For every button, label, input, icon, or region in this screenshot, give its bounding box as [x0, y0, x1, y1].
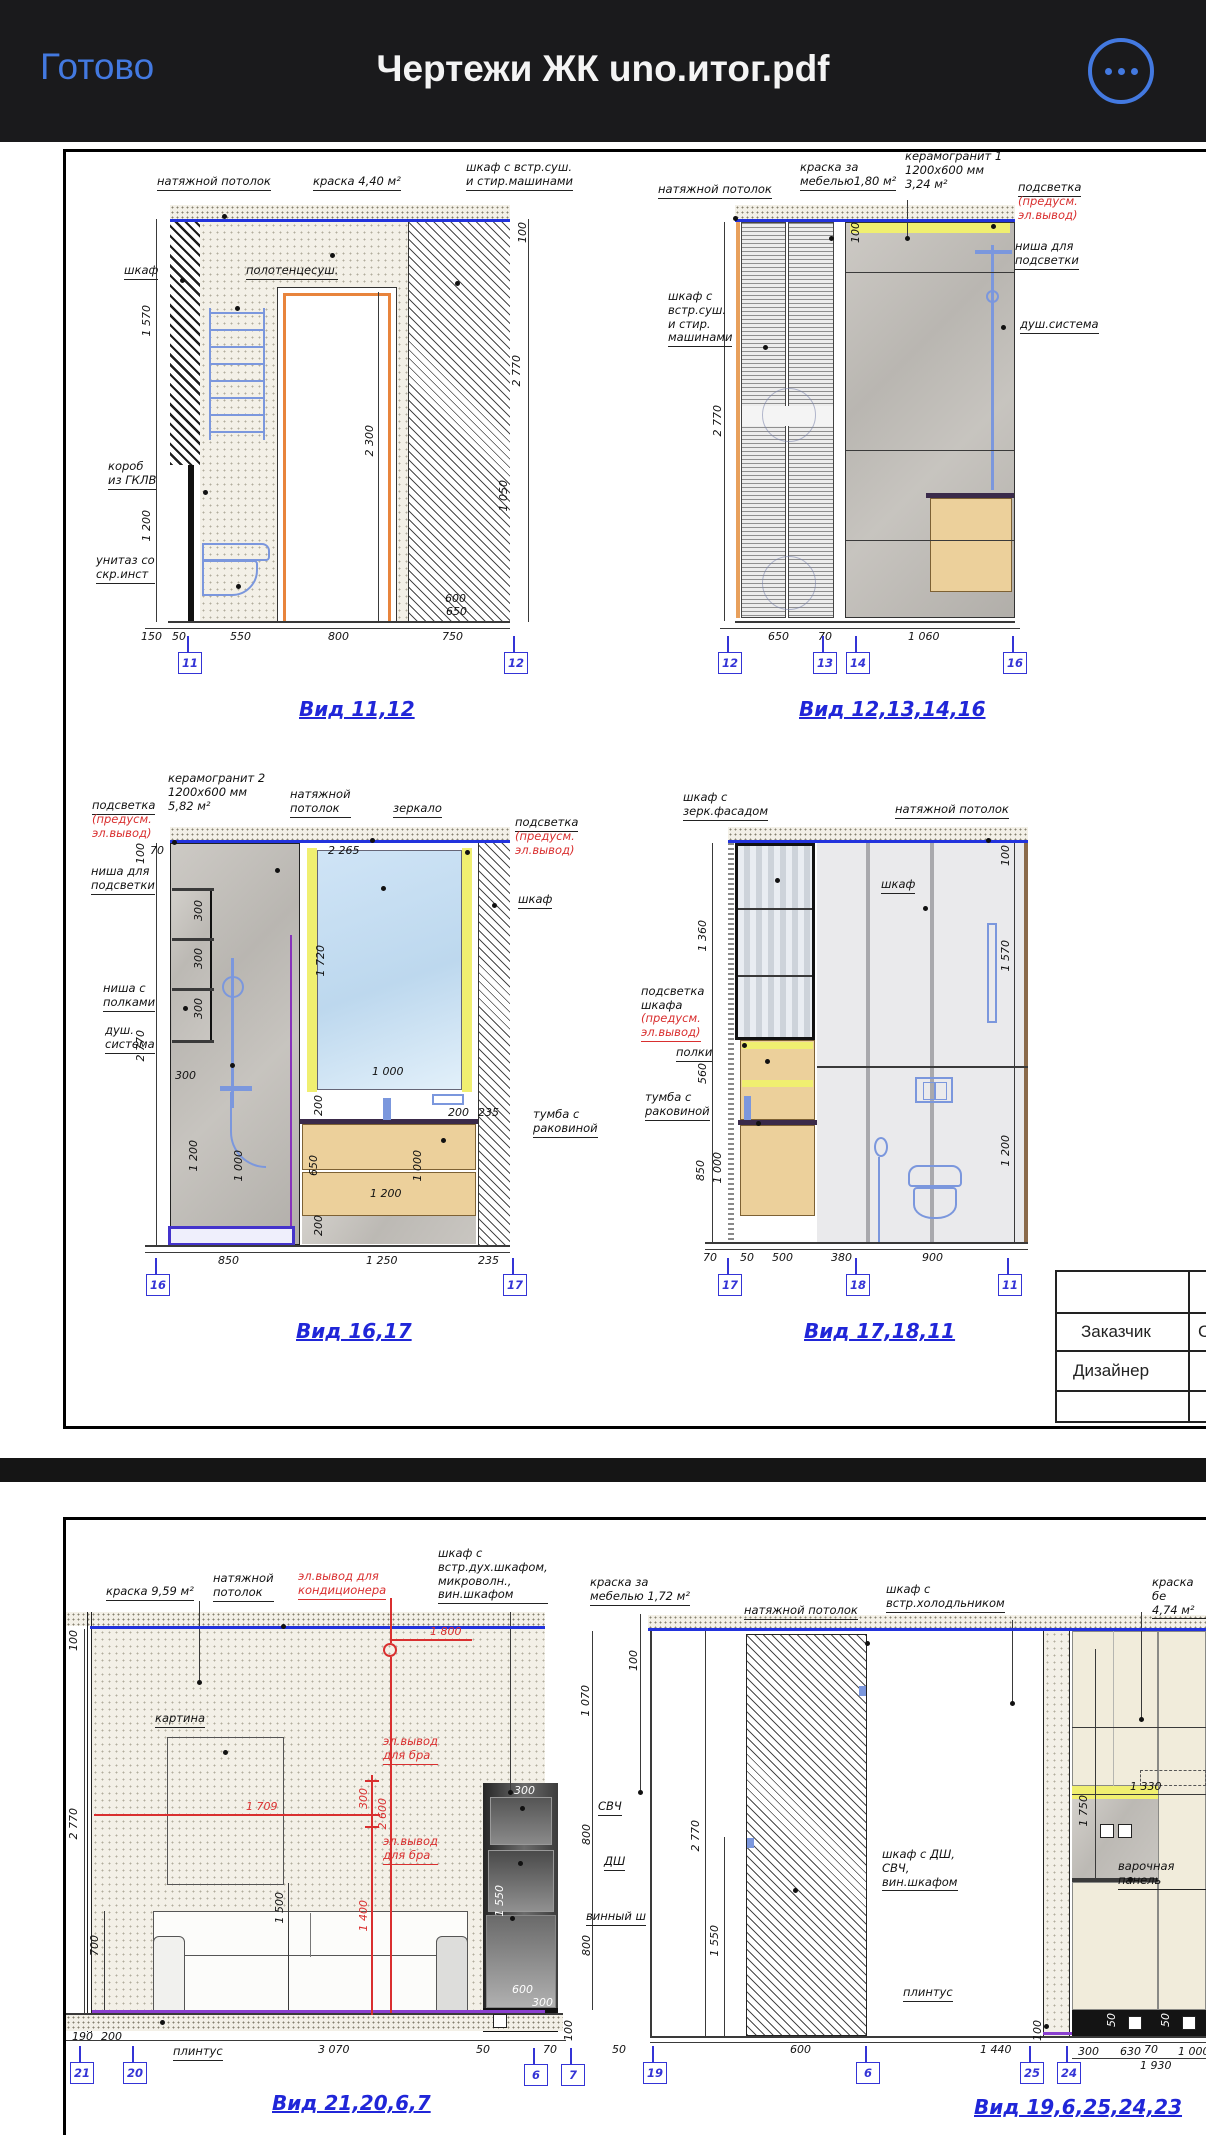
d2-leader-dot [763, 345, 768, 350]
d1-dim-line-right [528, 219, 529, 622]
d3-callout-light-niche: ниша для подсветки [91, 865, 155, 895]
d2-washer-drum-outline [762, 388, 816, 442]
d1-dim: 600 [445, 593, 466, 604]
d3-ceiling-slab [170, 827, 510, 840]
d3-accessories [432, 1094, 464, 1105]
d6-leader-dot [793, 1888, 798, 1893]
d6-dim-line-2770 [705, 1631, 706, 2036]
d6-view-marker: 6 [856, 2062, 880, 2084]
d2-leader-dot [991, 224, 996, 229]
d3-faucet [383, 1098, 391, 1120]
d5-dim: 1 070 [580, 1685, 591, 1717]
d3-floor-line [145, 1245, 510, 1247]
more-menu-button[interactable] [1088, 38, 1154, 104]
d3-dim: 1 720 [315, 945, 326, 977]
d5-microwave [490, 1797, 552, 1845]
d1-leader-dot [330, 253, 335, 258]
d5-floor-line [66, 2013, 563, 2015]
d5-dim: 190 [72, 2031, 93, 2042]
d5-dim: 2 770 [68, 1808, 79, 1840]
d4-shelf-backlight [742, 1080, 813, 1087]
d4-caption-link[interactable]: Вид 17,18,11 [798, 1318, 961, 1344]
d5-red-dim-1709-line [94, 1814, 380, 1816]
d5-dim-white: 300 [532, 1997, 553, 2008]
d5-dim: 100 [563, 2020, 574, 2041]
d5-callout-tall-cabinet: шкаф с встр.дух.шкафом, микроволн., вин.… [438, 1547, 548, 1604]
d4-callout-mirror-cabinet: шкаф с зерк.фасадом [683, 791, 768, 821]
d4-leader-dot [742, 1043, 747, 1048]
d6-dim: 100 [1032, 2020, 1043, 2041]
d2-light-niche [850, 223, 1010, 233]
d5-callout-microwave: СВЧ [598, 1800, 622, 1816]
title-block-line [1057, 1312, 1206, 1314]
d6-dim: 1 550 [709, 1925, 720, 1957]
d4-dim: 500 [772, 1252, 793, 1263]
page-gap [0, 1458, 1206, 1482]
d5-dim: 700 [89, 1935, 100, 1956]
d6-view-marker: 19 [643, 2062, 667, 2084]
d2-shower-pipe [991, 245, 994, 490]
d2-callout-backlight-red: (предусм. эл.вывод) [1018, 195, 1078, 223]
d6-dim: 2 770 [690, 1820, 701, 1852]
d6-plinth-socket-icon [1128, 2016, 1142, 2030]
d6-socket-icon [1118, 1824, 1132, 1838]
d2-stretch-ceiling-line [735, 219, 1015, 222]
d3-dim-line-left [156, 843, 157, 1245]
top-bar: Готово Чертежи ЖК uno.итог.pdf [0, 0, 1206, 142]
d6-leader-dot [1044, 2024, 1049, 2029]
d4-faucet [744, 1096, 751, 1120]
d6-panel-handle [747, 1838, 754, 1848]
d6-lower-cabinets [1072, 1882, 1158, 2010]
d3-dim: 235 [478, 1255, 499, 1266]
d6-dim: 100 [628, 1650, 639, 1671]
d6-stretch-ceiling-line [648, 1628, 1206, 1631]
d2-view-marker: 13 [813, 652, 837, 674]
d1-towel-dryer-rungs [211, 312, 263, 438]
d4-towel-bar [987, 923, 997, 1023]
d6-dim: 1 440 [980, 2044, 1012, 2055]
d6-callout-paint-white: краска бе 4,74 м² [1152, 1576, 1206, 1619]
d5-dim-white: 1 550 [494, 1885, 505, 1917]
d1-dim: 150 [141, 631, 162, 642]
d1-view-marker: 11 [178, 652, 202, 674]
d5-dim: 200 [101, 2031, 122, 2042]
d5-dim-line-left [84, 1629, 85, 2013]
d5-caption-link[interactable]: Вид 21,20,6,7 [266, 2090, 437, 2116]
d5-red-dim: 1 800 [430, 1626, 462, 1637]
d6-view-marker: 25 [1020, 2062, 1044, 2084]
d5-stretch-ceiling-line [90, 1626, 545, 1629]
d1-stretch-ceiling-line [170, 219, 510, 222]
d4-leader-dot [923, 906, 928, 911]
d4-hygienic-shower [874, 1137, 888, 1157]
d6-cabinet-seam [1072, 1727, 1206, 1728]
d4-callout-cabinet: шкаф [881, 878, 915, 894]
d1-gkl-duct-wall [188, 465, 194, 622]
d5-callout-oven: ДШ [604, 1855, 625, 1871]
d4-wall-right-edge [1024, 843, 1028, 1243]
d5-dim-line-1500 [288, 1883, 289, 2013]
d5-leader-dot [223, 1750, 228, 1755]
d5-callout-paint: краска 9,59 м² [106, 1585, 194, 1601]
d6-leader-dot [1139, 1717, 1144, 1722]
d3-dim: 2 265 [328, 845, 360, 856]
title-block-divider [1188, 1272, 1190, 1421]
d5-callout-picture: картина [155, 1712, 205, 1728]
d4-dim: 1 200 [1000, 1135, 1011, 1167]
d3-dim: 1 250 [366, 1255, 398, 1266]
d6-dim-white: 50 [1106, 2013, 1117, 2027]
d3-callout-porcelain: керамогранит 2 1200х600 мм 5,82 м² [168, 772, 265, 813]
d1-callout-towel-dryer: полотенцесуш. [246, 264, 338, 280]
d3-dim: 300 [175, 1070, 196, 1081]
d3-dim: 1 000 [372, 1066, 404, 1077]
d1-callout-gkl-duct: короб из ГКЛВ [108, 460, 156, 490]
d5-plinth-line [92, 2010, 545, 2013]
d5-sofa-armrest-left [153, 1936, 185, 2011]
d3-dim: 1 000 [412, 1150, 423, 1182]
d6-dim-line-1550 [724, 1837, 725, 2036]
d5-dim: 50 [476, 2044, 490, 2055]
d1-dim: 50 [172, 631, 186, 642]
d5-red-dim-1800-line [390, 1639, 472, 1641]
d2-shower-head [975, 250, 1012, 254]
d3-niche-shelf [172, 1040, 214, 1043]
d4-callout-shelves: полки [676, 1046, 712, 1062]
d3-niche-shelf [172, 988, 214, 991]
d4-shelf-backlight [742, 1042, 813, 1049]
d3-callout-vanity: тумба с раковиной [533, 1108, 598, 1138]
d6-leader-dot [865, 1641, 870, 1646]
d2-callout-light-niche: ниша для подсветки [1015, 240, 1079, 270]
d4-dim-line-bottom [705, 1249, 1028, 1250]
d2-callout-ceiling: натяжной потолок [658, 183, 772, 199]
d3-vanity-drawer-top [302, 1124, 476, 1170]
d6-dim-line-1750 [1095, 1649, 1096, 1878]
d2-view-marker: 16 [1003, 652, 1027, 674]
d6-callout-cooktop: варочная панель [1118, 1860, 1206, 1890]
d3-dim: 300 [193, 998, 204, 1019]
d1-dim: 1 570 [141, 305, 152, 337]
d6-upper-cabinets [1072, 1631, 1158, 1786]
d6-leader [1012, 1620, 1013, 1703]
d3-dim: 1 200 [188, 1140, 199, 1172]
d5-red-dim: 300 [358, 1788, 369, 1809]
d3-view-marker: 16 [146, 1274, 170, 1296]
d3-leader-dot [370, 838, 375, 843]
titleblock-designer-label: Дизайнер [1073, 1361, 1149, 1381]
d3-dim: 70 [150, 845, 164, 856]
d2-callout-cabinet-machines: шкаф с встр.суш. и стир. машинами [668, 290, 732, 347]
d3-niche-shelf [172, 888, 214, 891]
d2-leader-dot [1001, 325, 1006, 330]
d1-callout-cabinet-machines: шкаф с встр.суш. и стир.машинами [466, 161, 573, 191]
d4-dim: 1 570 [1000, 940, 1011, 972]
d4-view-marker: 18 [846, 1274, 870, 1296]
d5-callout-sconce-outlet: эл.вывод для бра [383, 1835, 438, 1865]
d2-leader-dot [905, 236, 910, 241]
d5-leader-dot [518, 1861, 523, 1866]
d3-leader-dot [172, 840, 177, 845]
d2-view-marker: 14 [846, 652, 870, 674]
d5-leader [510, 1612, 511, 1792]
d6-cabinet-seam-v [1113, 1631, 1114, 1786]
d2-dim: 100 [850, 222, 861, 243]
d2-dim-line-bottom [720, 628, 1020, 629]
d1-dim: 550 [230, 631, 251, 642]
d4-view-marker: 17 [718, 1274, 742, 1296]
d1-dim-line-door [378, 292, 379, 622]
d4-flush-button [923, 1082, 935, 1100]
d3-dim: 235 [478, 1107, 499, 1118]
d1-dim-line-bottom [145, 628, 510, 629]
d1-callout-ceiling: натяжной потолок [157, 175, 271, 191]
d4-hygienic-hose [878, 1157, 880, 1243]
d6-leader-dot [1128, 1877, 1133, 1882]
d4-toilet-tank-row [908, 1165, 962, 1187]
d4-leader-dot [775, 878, 780, 883]
d5-leader [199, 1601, 200, 1681]
d2-caption-link[interactable]: Вид 12,13,14,16 [793, 696, 992, 722]
d6-tall-cabinet [1158, 1631, 1206, 2010]
d1-leader-dot [455, 281, 460, 286]
d4-leader-dot [756, 1121, 761, 1126]
d3-shower-mixer [220, 1086, 252, 1091]
d3-shower-tray [168, 1226, 295, 1246]
d5-callout-wine: винный ш [586, 1910, 646, 1926]
d6-caption-link[interactable]: Вид 19,6,25,24,23 [968, 2094, 1188, 2120]
title-block: Заказчик Дизайнер С [1055, 1270, 1206, 1423]
d1-leader-dot [222, 214, 227, 219]
d1-toilet-tank [202, 543, 270, 561]
d4-dim: 380 [831, 1252, 852, 1263]
d3-leader-dot [230, 1063, 235, 1068]
d5-leader-dot [510, 1916, 515, 1921]
d5-sofa-seat [153, 1955, 468, 2011]
d1-ceiling-slab [170, 205, 510, 219]
d6-callout-fridge-cabinet: шкаф с встр.холодльником [886, 1583, 1005, 1613]
d5-sconce-outlet-cross [365, 1780, 379, 1782]
d4-flush-button [935, 1082, 947, 1100]
d4-callout-cab-backlight: подсветка шкафа [641, 985, 704, 1013]
d5-dim-white: 300 [514, 1785, 535, 1796]
d4-vanity-cabinet [740, 1125, 815, 1216]
d6-leader-dot [638, 1790, 643, 1795]
d1-dim: 100 [517, 222, 528, 243]
d2-tile-joint [846, 272, 1014, 273]
d2-leader-dot [733, 216, 738, 221]
d4-view-marker: 11 [998, 1274, 1022, 1296]
d1-leader-dot [180, 278, 185, 283]
d5-red-dim: 1 400 [358, 1900, 369, 1932]
d6-leader-dot [1010, 1701, 1015, 1706]
d3-mirror [317, 850, 462, 1090]
d4-dim: 560 [697, 1063, 708, 1084]
d4-toilet-bowl [913, 1187, 957, 1219]
d2-tile-joint [846, 540, 1014, 541]
d6-dim-line-bottom [650, 2042, 1206, 2043]
d3-dim: 650 [308, 1155, 319, 1176]
d5-floor-slab [66, 2015, 563, 2031]
d3-leader-dot [441, 1138, 446, 1143]
d4-callout-ceiling: натяжной потолок [895, 803, 1009, 819]
d3-dim: 200 [313, 1095, 324, 1116]
d1-floor-line [168, 621, 510, 623]
d2-vanity-counter [926, 493, 1014, 498]
d6-left-edge [650, 1631, 652, 2036]
d3-callout-ceiling: натяжной потолок [290, 788, 351, 818]
d6-dim-line-bottom2 [1072, 2058, 1206, 2059]
d4-dim: 1 360 [697, 920, 708, 952]
title-block-line [1057, 1390, 1206, 1392]
d6-wall [1043, 1631, 1070, 2036]
d5-dim: 800 [581, 1824, 592, 1845]
d5-dim: 800 [581, 1935, 592, 1956]
d5-socket-icon [493, 2014, 507, 2028]
d5-leader-dot [197, 1680, 202, 1685]
d3-shower-head [222, 976, 244, 998]
d2-dim: 650 [768, 631, 789, 642]
d2-vanity-cabinet [930, 498, 1012, 592]
d3-dim: 300 [193, 900, 204, 921]
d5-red-leader-ac [390, 1598, 392, 1643]
d4-dim: 1 000 [712, 1152, 723, 1184]
d5-view-marker: 21 [70, 2062, 94, 2084]
d3-view-marker: 17 [503, 1274, 527, 1296]
d2-ceiling-slab [735, 205, 1015, 219]
d2-dryer-drum-outline [762, 556, 816, 610]
d6-plinth-socket-icon [1182, 2016, 1196, 2030]
d6-dim: 70 [1144, 2044, 1158, 2055]
d1-left-wall-hatch [170, 222, 200, 465]
d1-leader-dot [236, 584, 241, 589]
d5-view-marker: 7 [561, 2064, 585, 2086]
d5-ceiling-slab [66, 1612, 545, 1626]
d3-caption-link[interactable]: Вид 16,17 [290, 1318, 418, 1344]
d4-dim: 850 [695, 1160, 706, 1181]
d2-leader-dot [829, 236, 834, 241]
d3-dim: 200 [313, 1215, 324, 1236]
titleblock-customer-label: Заказчик [1081, 1322, 1151, 1342]
d2-dim: 1 060 [908, 631, 940, 642]
d1-door-frame [283, 293, 391, 622]
d5-view-marker: 20 [123, 2062, 147, 2084]
d6-callout-dw-cabinet: шкаф с ДШ, СВЧ, вин.шкафом [882, 1848, 958, 1891]
d2-cabinet-edge [736, 222, 740, 618]
d4-panel-seam [866, 843, 870, 1243]
ellipsis-icon [1131, 68, 1138, 75]
d5-leader-dot [160, 2020, 165, 2025]
d3-dim: 100 [135, 843, 146, 864]
d3-niche-shelf [172, 938, 214, 941]
d6-dim: 1 330 [1130, 1781, 1162, 1792]
d3-callout-mirror: зеркало [393, 802, 442, 818]
d5-red-dim: 2 600 [377, 1798, 388, 1830]
d4-leader-dot [765, 1059, 770, 1064]
d4-dim: 100 [1000, 845, 1011, 866]
d4-callout-cab-backlight-red: (предусм. эл.вывод) [641, 1012, 701, 1042]
d5-red-dim: 1 709 [246, 1801, 278, 1812]
d6-dim: 300 [1078, 2046, 1099, 2057]
d3-callout-shelf-niche: ниша с полками [103, 982, 155, 1012]
d5-dim-white: 600 [512, 1984, 533, 1995]
d1-dim: 650 [446, 606, 467, 617]
d2-tile-joint [846, 450, 1014, 451]
d5-dim-line-700 [104, 1911, 105, 2013]
d5-dim: 1 500 [274, 1892, 285, 1924]
d5-sofa-armrest-right [436, 1936, 468, 2011]
d3-leader-dot [492, 903, 497, 908]
d3-dim: 850 [218, 1255, 239, 1266]
d5-leader-dot [508, 1790, 513, 1795]
d1-view-marker: 12 [504, 652, 528, 674]
d6-leader [640, 1614, 641, 1792]
d6-dim: 50 [612, 2044, 626, 2055]
d6-dim-white: 50 [1160, 2013, 1171, 2027]
d1-caption-link[interactable]: Вид 11,12 [293, 696, 421, 722]
d3-leader-dot [381, 886, 386, 891]
titleblock-customer-value-cut: С [1198, 1322, 1206, 1342]
d6-ceiling-slab [648, 1615, 1206, 1628]
d4-wall-edge [728, 843, 734, 1243]
d4-dim-line-right [1014, 843, 1015, 1243]
pdf-viewer-screen: натяжной потолок краска 4,40 м² шкаф с в… [0, 0, 1206, 2135]
d2-callout-porcelain: керамогранит 1 1200х600 мм 3,24 м² [905, 150, 1002, 191]
d1-callout-toilet: унитаз со скр.инст [96, 554, 155, 584]
d3-marble-base [302, 1216, 476, 1244]
d5-callout-ceiling: натяжной потолок [213, 1572, 274, 1602]
d3-dim: 200 [448, 1107, 469, 1118]
d5-dim: 3 070 [318, 2044, 350, 2055]
d5-view-marker: 6 [524, 2064, 548, 2086]
ellipsis-icon [1118, 68, 1125, 75]
d5-leader-dot [281, 1624, 286, 1629]
d3-dim: 300 [193, 948, 204, 969]
d6-plinth-line [1043, 2032, 1072, 2035]
d2-callout-paint-behind: краска за мебелью1,80 м² [800, 161, 896, 191]
d2-view-marker: 12 [718, 652, 742, 674]
d4-callout-vanity: тумба с раковиной [645, 1091, 710, 1121]
d6-floor-line [650, 2036, 1206, 2038]
d1-dim: 1 200 [141, 510, 152, 542]
d4-mirror-front-cabinet [735, 843, 815, 1040]
d5-red-dim-sconce-line [371, 1775, 373, 2015]
d3-callout-cabinet: шкаф [518, 893, 552, 909]
d4-ceiling-slab [728, 827, 1028, 840]
d6-callout-paint-behind: краска за мебелью 1,72 м² [590, 1576, 690, 1606]
d3-leader-dot [275, 868, 280, 873]
d3-stretch-ceiling-line [170, 840, 510, 843]
d3-dim: 1 000 [233, 1150, 244, 1182]
d4-stretch-ceiling-line [728, 840, 1028, 843]
d3-mirror-backlight-right [462, 848, 472, 1092]
d6-panel-handle [859, 1686, 866, 1696]
d4-panel-seam-h [817, 1066, 1028, 1068]
d4-dim: 900 [922, 1252, 943, 1263]
d6-view-marker: 24 [1057, 2062, 1081, 2084]
d1-dim: 800 [328, 631, 349, 642]
d6-dim: 1 750 [1078, 1795, 1089, 1827]
d4-dim: 70 [703, 1252, 717, 1263]
d1-dim: 2 300 [364, 425, 375, 457]
d6-callout-plinth: плинтус [903, 1986, 953, 2002]
d3-dim: 1 200 [370, 1188, 402, 1199]
d3-glass-partition [290, 935, 292, 1243]
document-title: Чертежи ЖК uno.итог.pdf [0, 48, 1206, 90]
d4-leader-dot [986, 838, 991, 843]
title-block-line [1057, 1350, 1206, 1352]
